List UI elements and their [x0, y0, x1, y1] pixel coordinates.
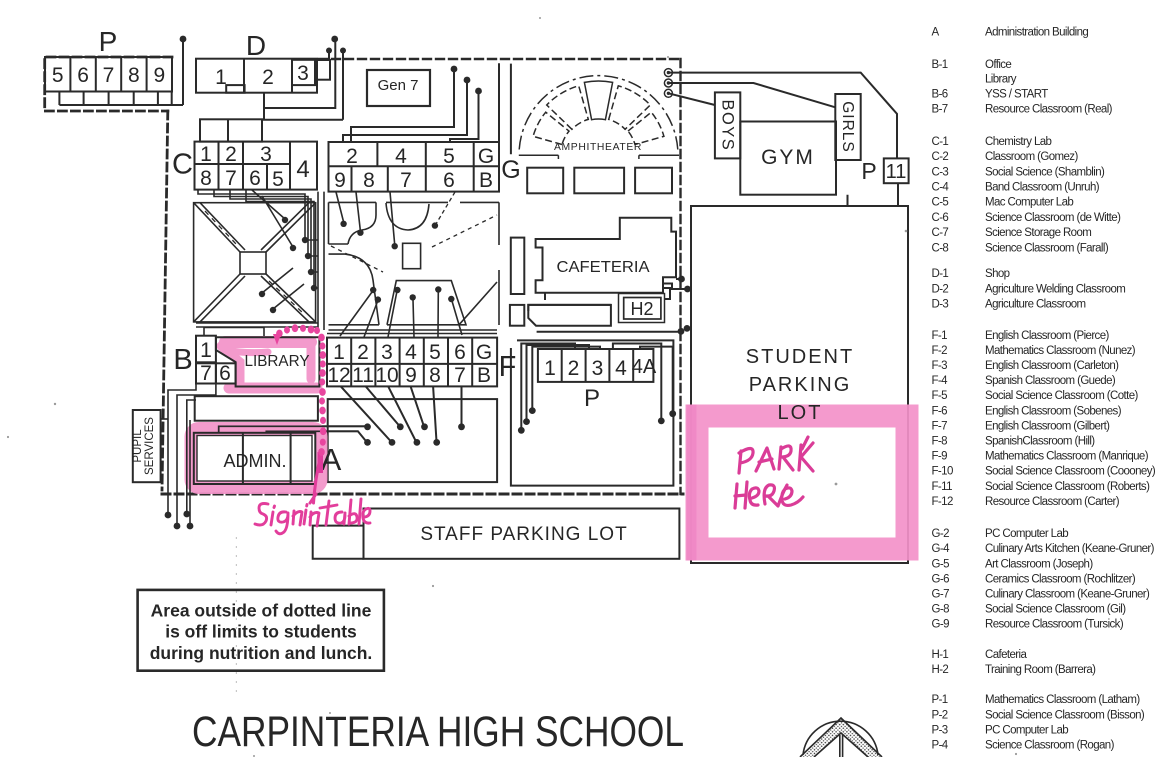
svg-text:SpanishClassroom (Hill): SpanishClassroom (Hill)	[985, 436, 1095, 448]
svg-text:5: 5	[52, 64, 64, 87]
svg-text:6: 6	[249, 167, 261, 190]
svg-text:G: G	[478, 145, 494, 168]
svg-text:ADMIN.: ADMIN.	[224, 451, 287, 471]
svg-text:CAFETERIA: CAFETERIA	[557, 259, 651, 276]
svg-text:Social Science Classroom (Cott: Social Science Classroom (Cotte)	[985, 390, 1138, 402]
svg-text:6: 6	[443, 169, 455, 192]
svg-text:Science Classroom (Farall): Science Classroom (Farall)	[985, 242, 1109, 254]
svg-text:GYM: GYM	[761, 146, 815, 169]
svg-text:2: 2	[568, 357, 580, 380]
svg-text:Social Science Classroom (Cooo: Social Science Classroom (Coooney)	[985, 466, 1156, 478]
svg-text:Agriculture Classroom: Agriculture Classroom	[985, 299, 1086, 311]
svg-text:G-6: G-6	[932, 573, 950, 585]
svg-text:1: 1	[215, 66, 227, 89]
svg-text:Mac Computer Lab: Mac Computer Lab	[985, 197, 1073, 209]
svg-text:G: G	[476, 341, 492, 364]
svg-text:G-4: G-4	[932, 543, 951, 555]
svg-text:8: 8	[128, 64, 140, 87]
svg-text:A: A	[321, 442, 342, 477]
svg-text:C-1: C-1	[932, 136, 949, 148]
svg-text:4: 4	[405, 341, 417, 364]
svg-text:Administration Building: Administration Building	[985, 27, 1088, 39]
svg-text:Art Classroom (Joseph): Art Classroom (Joseph)	[985, 558, 1093, 570]
svg-text:YSS / START: YSS / START	[985, 89, 1048, 101]
svg-text:Culinary Arts Kitchen (Keane-G: Culinary Arts Kitchen (Keane-Gruner)	[985, 543, 1155, 555]
svg-text:Classroom (Gomez): Classroom (Gomez)	[985, 151, 1078, 163]
svg-text:Resource Classroom (Tursick): Resource Classroom (Tursick)	[985, 619, 1124, 631]
svg-text:5: 5	[429, 341, 441, 364]
svg-text:7: 7	[103, 64, 115, 87]
svg-text:H-1: H-1	[932, 649, 949, 661]
svg-text:PC Computer Lab: PC Computer Lab	[985, 528, 1068, 540]
svg-text:3: 3	[592, 357, 604, 380]
svg-text:12: 12	[327, 364, 350, 387]
svg-text:Band Classroom (Unruh): Band Classroom (Unruh)	[985, 182, 1100, 194]
svg-text:Library: Library	[985, 73, 1017, 85]
svg-text:F-5: F-5	[932, 390, 948, 402]
svg-text:1: 1	[200, 143, 212, 166]
svg-text:C-5: C-5	[932, 197, 949, 209]
svg-text:G-2: G-2	[932, 528, 950, 540]
svg-text:H-2: H-2	[932, 664, 949, 676]
svg-text:English Classroom (Sobenes): English Classroom (Sobenes)	[985, 405, 1122, 417]
svg-text:9: 9	[153, 64, 165, 87]
svg-text:4: 4	[615, 357, 627, 380]
svg-text:PARKING: PARKING	[749, 374, 852, 396]
svg-text:B-6: B-6	[932, 89, 948, 101]
svg-text:SERVICES: SERVICES	[144, 417, 156, 475]
svg-text:D-2: D-2	[932, 283, 949, 295]
svg-text:1: 1	[200, 339, 212, 362]
svg-text:Social Science Classroom (Robe: Social Science Classroom (Roberts)	[985, 481, 1150, 493]
svg-text:F-2: F-2	[932, 345, 948, 357]
svg-text:Spanish Classroom (Guede): Spanish Classroom (Guede)	[985, 375, 1116, 387]
svg-text:H2: H2	[630, 299, 653, 319]
svg-text:4A: 4A	[632, 356, 657, 378]
svg-text:3: 3	[260, 143, 272, 166]
svg-text:Culinary Classroom (Keane-Grun: Culinary Classroom (Keane-Gruner)	[985, 589, 1150, 601]
svg-text:English Classroom (Pierce): English Classroom (Pierce)	[985, 330, 1109, 342]
svg-text:B: B	[173, 344, 192, 376]
svg-text:B: B	[477, 364, 491, 387]
svg-text:2: 2	[357, 341, 369, 364]
svg-text:during nutrition and lunch.: during nutrition and lunch.	[150, 643, 373, 663]
svg-text:Chemistry Lab: Chemistry Lab	[985, 136, 1052, 148]
svg-text:P-1: P-1	[932, 694, 948, 706]
svg-text:6: 6	[454, 341, 466, 364]
svg-text:F-1: F-1	[932, 330, 948, 342]
svg-text:C-6: C-6	[932, 212, 949, 224]
svg-text:PC Computer Lab: PC Computer Lab	[985, 724, 1068, 736]
svg-text:6: 6	[77, 64, 89, 87]
svg-text:C-2: C-2	[932, 151, 949, 163]
svg-text:C-3: C-3	[932, 166, 949, 178]
svg-text:F-9: F-9	[932, 451, 948, 463]
svg-text:Social Science (Shamblin): Social Science (Shamblin)	[985, 166, 1105, 178]
svg-text:STAFF PARKING LOT: STAFF PARKING LOT	[420, 524, 627, 545]
svg-text:F-6: F-6	[932, 405, 948, 417]
svg-text:2: 2	[225, 143, 237, 166]
svg-text:7: 7	[454, 364, 466, 387]
svg-text:A: A	[932, 27, 940, 39]
svg-text:5: 5	[443, 145, 455, 168]
svg-text:Social Science Classroom (Gil): Social Science Classroom (Gil)	[985, 604, 1126, 616]
svg-text:F-3: F-3	[932, 360, 948, 372]
svg-text:F-8: F-8	[932, 436, 948, 448]
svg-text:B-7: B-7	[932, 104, 948, 116]
svg-text:CARPINTERIA HIGH SCHOOL: CARPINTERIA HIGH SCHOOL	[192, 709, 684, 756]
svg-text:8: 8	[363, 169, 375, 192]
svg-text:C: C	[172, 149, 193, 181]
svg-text:G-5: G-5	[932, 558, 950, 570]
svg-text:STUDENT: STUDENT	[746, 346, 854, 368]
svg-text:Mathematics Classroom (Nunez): Mathematics Classroom (Nunez)	[985, 345, 1136, 357]
svg-text:D-3: D-3	[932, 299, 949, 311]
svg-text:11: 11	[886, 161, 907, 183]
svg-text:B-1: B-1	[932, 59, 948, 71]
svg-text:2: 2	[346, 145, 358, 168]
svg-text:Agriculture Welding Classroom: Agriculture Welding Classroom	[985, 283, 1125, 295]
svg-text:P: P	[861, 158, 876, 184]
svg-text:9: 9	[405, 364, 417, 387]
svg-text:3: 3	[381, 341, 393, 364]
svg-text:8: 8	[429, 364, 441, 387]
svg-text:F-10: F-10	[932, 466, 953, 478]
svg-text:7: 7	[200, 362, 212, 385]
svg-text:7: 7	[225, 167, 237, 190]
svg-text:Science Classroom (de Witte): Science Classroom (de Witte)	[985, 212, 1121, 224]
svg-text:Training Room (Barrera): Training Room (Barrera)	[985, 664, 1096, 676]
svg-text:F: F	[499, 351, 517, 383]
svg-text:P-2: P-2	[932, 709, 948, 721]
svg-text:F-4: F-4	[932, 375, 949, 387]
svg-text:English Classroom (Carleton): English Classroom (Carleton)	[985, 360, 1119, 372]
svg-text:C-4: C-4	[932, 182, 950, 194]
svg-text:D-1: D-1	[932, 268, 949, 280]
svg-text:GIRLS: GIRLS	[839, 101, 856, 153]
svg-text:PUPIL: PUPIL	[132, 429, 144, 463]
svg-text:8: 8	[200, 167, 212, 190]
svg-text:BOYS: BOYS	[719, 99, 737, 151]
svg-text:English Classroom (Gilbert): English Classroom (Gilbert)	[985, 420, 1110, 432]
svg-text:P: P	[99, 26, 118, 57]
svg-text:Gen 7: Gen 7	[378, 77, 419, 94]
svg-text:P-4: P-4	[932, 740, 949, 752]
svg-text:F-12: F-12	[932, 496, 953, 508]
svg-text:Area outside of dotted line: Area outside of dotted line	[151, 600, 372, 620]
svg-text:F-7: F-7	[932, 420, 948, 432]
svg-text:Resource Classroom (Carter): Resource Classroom (Carter)	[985, 496, 1120, 508]
svg-text:C-7: C-7	[932, 227, 949, 239]
svg-text:G-9: G-9	[932, 619, 950, 631]
svg-text:2: 2	[262, 66, 274, 89]
svg-text:F-11: F-11	[932, 481, 953, 493]
svg-text:P: P	[584, 385, 600, 412]
svg-text:C-8: C-8	[932, 242, 949, 254]
svg-text:4: 4	[395, 145, 407, 168]
svg-text:Social Science Classroom (Biss: Social Science Classroom (Bisson)	[985, 709, 1145, 721]
svg-text:Office: Office	[985, 59, 1011, 71]
svg-text:G-8: G-8	[932, 604, 950, 616]
svg-text:10: 10	[375, 364, 398, 387]
svg-text:1: 1	[544, 357, 556, 380]
svg-text:G: G	[501, 156, 520, 184]
svg-text:9: 9	[334, 169, 346, 192]
svg-text:Mathematics Classroom (Manriqu: Mathematics Classroom (Manrique)	[985, 451, 1149, 463]
svg-text:AMPHITHEATER: AMPHITHEATER	[554, 142, 642, 153]
svg-text:3: 3	[297, 62, 309, 85]
svg-text:5: 5	[272, 168, 284, 191]
svg-text:is off limits to students: is off limits to students	[165, 622, 357, 642]
svg-text:Cafeteria: Cafeteria	[985, 649, 1027, 661]
svg-text:LOT: LOT	[778, 402, 823, 424]
svg-text:Science Storage Room: Science Storage Room	[985, 227, 1091, 239]
svg-text:7: 7	[400, 169, 412, 192]
svg-text:Resource Classroom (Real): Resource Classroom (Real)	[985, 104, 1113, 116]
svg-text:Science Classroom (Rogan): Science Classroom (Rogan)	[985, 740, 1115, 752]
svg-text:G-7: G-7	[932, 589, 950, 601]
svg-text:B: B	[479, 169, 493, 192]
svg-text:LIBRARY: LIBRARY	[245, 353, 310, 370]
svg-text:6: 6	[219, 362, 231, 385]
svg-text:P-3: P-3	[932, 724, 948, 736]
svg-text:D: D	[246, 30, 266, 61]
svg-text:Ceramics Classroom (Rochlitzer: Ceramics Classroom (Rochlitzer)	[985, 573, 1136, 585]
svg-text:Mathematics Classroom (Latham): Mathematics Classroom (Latham)	[985, 694, 1140, 706]
svg-text:Shop: Shop	[985, 268, 1010, 280]
svg-text:1: 1	[333, 341, 345, 364]
svg-text:4: 4	[296, 156, 309, 183]
svg-text:11: 11	[352, 364, 374, 387]
